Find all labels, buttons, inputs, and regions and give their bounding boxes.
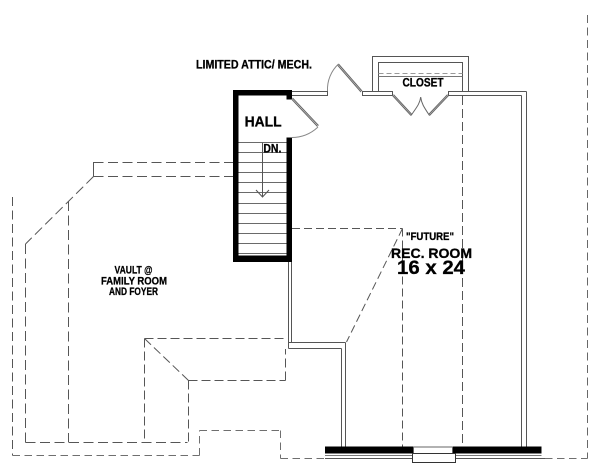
svg-text:LIMITED ATTIC/ MECH.: LIMITED ATTIC/ MECH.	[196, 58, 312, 72]
svg-text:HALL: HALL	[245, 113, 282, 130]
svg-text:CLOSET: CLOSET	[403, 77, 444, 89]
svg-text:16 x 24: 16 x 24	[397, 258, 465, 279]
svg-text:"FUTURE": "FUTURE"	[406, 231, 454, 243]
svg-text:DN.: DN.	[263, 144, 281, 156]
svg-text:AND FOYER: AND FOYER	[109, 286, 158, 298]
